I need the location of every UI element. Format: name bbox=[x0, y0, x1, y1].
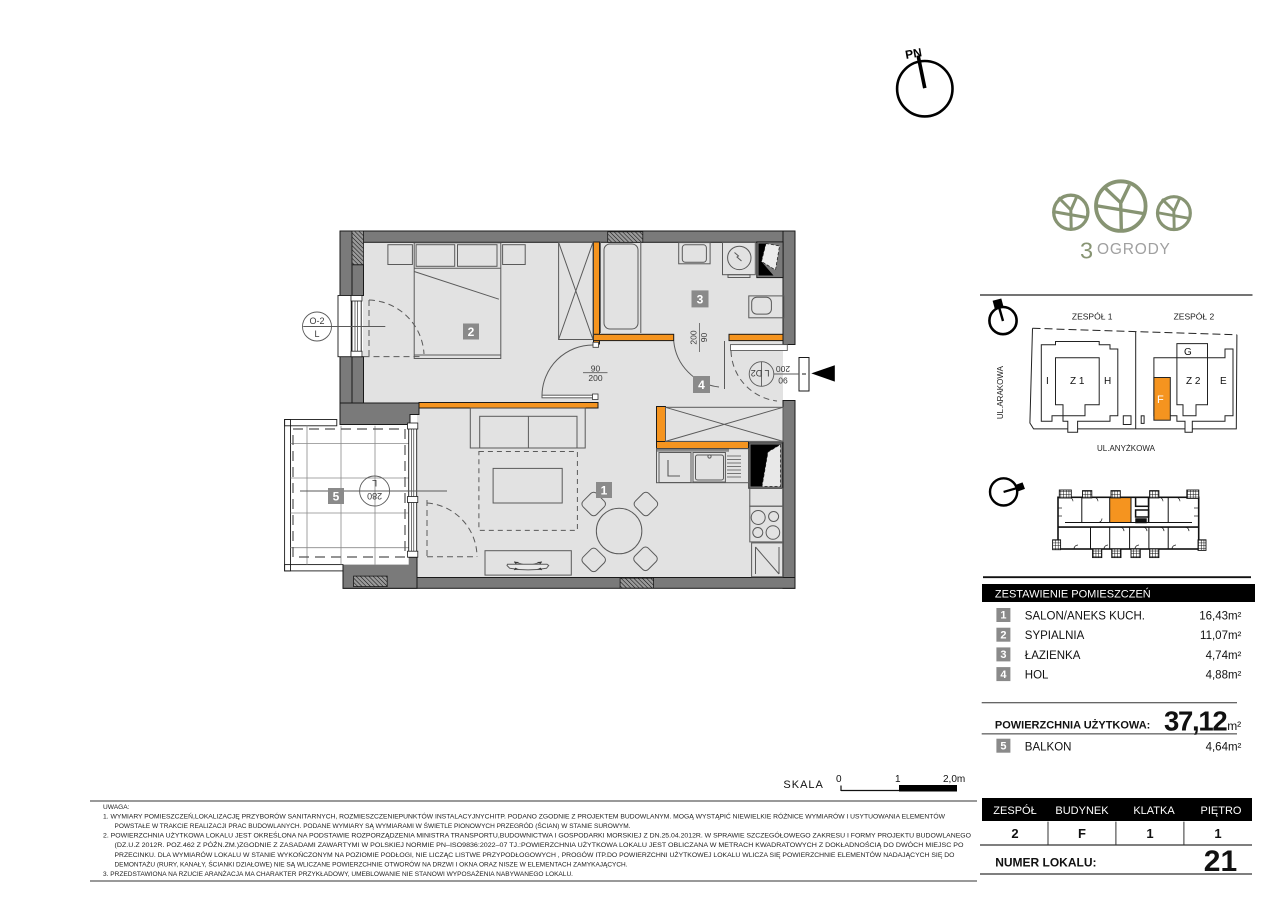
svg-text:1: 1 bbox=[895, 774, 901, 785]
svg-text:5: 5 bbox=[333, 490, 340, 504]
svg-text:POWIERZCHNIA UŻYTKOWA:: POWIERZCHNIA UŻYTKOWA: bbox=[995, 719, 1150, 732]
svg-text:2: 2 bbox=[1000, 629, 1006, 641]
svg-text:4,64m²: 4,64m² bbox=[1206, 741, 1242, 753]
svg-text:3: 3 bbox=[1000, 649, 1006, 661]
svg-text:1: 1 bbox=[1146, 826, 1153, 841]
svg-text:m²: m² bbox=[1227, 719, 1241, 733]
svg-text:PRZECINKU. DLA WYMIARÓW LOKALU: PRZECINKU. DLA WYMIARÓW LOKALU W STANIE … bbox=[115, 850, 955, 859]
svg-text:4: 4 bbox=[698, 378, 705, 392]
svg-text:90: 90 bbox=[699, 333, 709, 343]
svg-text:90: 90 bbox=[591, 364, 601, 374]
svg-text:5: 5 bbox=[1000, 740, 1006, 752]
svg-text:ZESPÓŁ 1: ZESPÓŁ 1 bbox=[1072, 312, 1113, 322]
svg-text:2: 2 bbox=[468, 325, 475, 339]
svg-text:POWSTAŁE W TRAKCIE REALIZACJI: POWSTAŁE W TRAKCIE REALIZACJI PRAC BUDOW… bbox=[115, 821, 631, 830]
svg-text:PIĘTRO: PIĘTRO bbox=[1201, 805, 1242, 817]
svg-text:3. PRZEDSTAWIONA NA RZUCIE AR: 3. PRZEDSTAWIONA NA RZUCIE ARANŻACJA MA … bbox=[103, 869, 573, 878]
svg-text:NUMER LOKALU:: NUMER LOKALU: bbox=[995, 856, 1096, 870]
svg-text:200: 200 bbox=[588, 373, 602, 383]
svg-text:3: 3 bbox=[697, 292, 704, 306]
svg-text:BALKON: BALKON bbox=[1025, 741, 1072, 753]
svg-text:1: 1 bbox=[601, 484, 608, 498]
svg-text:21: 21 bbox=[1204, 845, 1237, 878]
svg-text:G: G bbox=[1184, 347, 1192, 358]
svg-text:UWAGA:: UWAGA: bbox=[103, 804, 130, 811]
svg-text:1. WYMIARY POMIESZCZEŃ,LOKALI: 1. WYMIARY POMIESZCZEŃ,LOKALIZACJĘ PRZYB… bbox=[103, 811, 946, 820]
svg-text:16,43m²: 16,43m² bbox=[1199, 611, 1241, 623]
svg-text:3: 3 bbox=[1080, 238, 1093, 264]
svg-text:1: 1 bbox=[1000, 610, 1006, 622]
svg-text:L: L bbox=[372, 478, 377, 488]
svg-text:ŁAZIENKA: ŁAZIENKA bbox=[1025, 650, 1081, 662]
svg-text:2,0m: 2,0m bbox=[943, 774, 965, 785]
svg-text:KLATKA: KLATKA bbox=[1133, 805, 1175, 817]
svg-text:D2: D2 bbox=[751, 368, 763, 378]
svg-text:ZESPÓŁ 2: ZESPÓŁ 2 bbox=[1174, 312, 1215, 322]
svg-text:O-2: O-2 bbox=[309, 316, 324, 326]
svg-text:BUDYNEK: BUDYNEK bbox=[1055, 805, 1109, 817]
svg-text:PN: PN bbox=[904, 45, 923, 62]
svg-text:F: F bbox=[1078, 826, 1086, 841]
svg-text:(DZ.U.Z 2012R. POZ.462 Z PÓŹN.: (DZ.U.Z 2012R. POZ.462 Z PÓŹN.ZM.)ZGODNI… bbox=[115, 840, 964, 849]
svg-text:280: 280 bbox=[367, 491, 382, 501]
svg-text:DEMONTAŻU (RURY, KANAŁY, ŚCIAN: DEMONTAŻU (RURY, KANAŁY, ŚCIANKI DZIAŁOW… bbox=[115, 859, 628, 868]
svg-text:Z 1: Z 1 bbox=[1070, 376, 1085, 387]
svg-text:HOL: HOL bbox=[1025, 670, 1049, 682]
svg-text:F: F bbox=[1157, 394, 1164, 406]
svg-text:SALON/ANEKS KUCH.: SALON/ANEKS KUCH. bbox=[1025, 611, 1145, 623]
svg-text:H: H bbox=[1104, 376, 1111, 387]
svg-text:ZESPÓŁ: ZESPÓŁ bbox=[993, 804, 1036, 817]
svg-text:L: L bbox=[764, 368, 769, 378]
svg-text:UL.ANYŻKOWA: UL.ANYŻKOWA bbox=[1097, 444, 1156, 453]
svg-text:4,74m²: 4,74m² bbox=[1206, 650, 1242, 662]
svg-text:SKALA: SKALA bbox=[783, 779, 823, 791]
svg-text:L: L bbox=[314, 329, 319, 339]
svg-text:2: 2 bbox=[1011, 826, 1018, 841]
svg-text:UL.ARAKOWA: UL.ARAKOWA bbox=[996, 365, 1005, 419]
svg-text:11,07m²: 11,07m² bbox=[1200, 630, 1242, 642]
svg-text:4: 4 bbox=[1000, 669, 1007, 681]
svg-text:E: E bbox=[1220, 376, 1227, 387]
svg-text:1: 1 bbox=[1214, 826, 1221, 841]
svg-text:4,88m²: 4,88m² bbox=[1206, 670, 1242, 682]
svg-text:2. POWIERZCHNIA UŻYTKOWA LOKA: 2. POWIERZCHNIA UŻYTKOWA LOKALU JEST OKR… bbox=[103, 831, 971, 840]
svg-text:200: 200 bbox=[776, 364, 790, 374]
svg-text:I: I bbox=[1046, 376, 1049, 387]
svg-text:Z 2: Z 2 bbox=[1186, 376, 1201, 387]
svg-text:SYPIALNIA: SYPIALNIA bbox=[1025, 630, 1085, 642]
svg-text:OGRODY: OGRODY bbox=[1097, 241, 1171, 258]
svg-text:37,12: 37,12 bbox=[1164, 706, 1227, 737]
svg-text:200: 200 bbox=[689, 330, 699, 344]
svg-text:ZESTAWIENIE POMIESZCZEŃ: ZESTAWIENIE POMIESZCZEŃ bbox=[995, 588, 1151, 601]
svg-text:0: 0 bbox=[836, 774, 842, 785]
svg-text:90: 90 bbox=[778, 376, 788, 386]
